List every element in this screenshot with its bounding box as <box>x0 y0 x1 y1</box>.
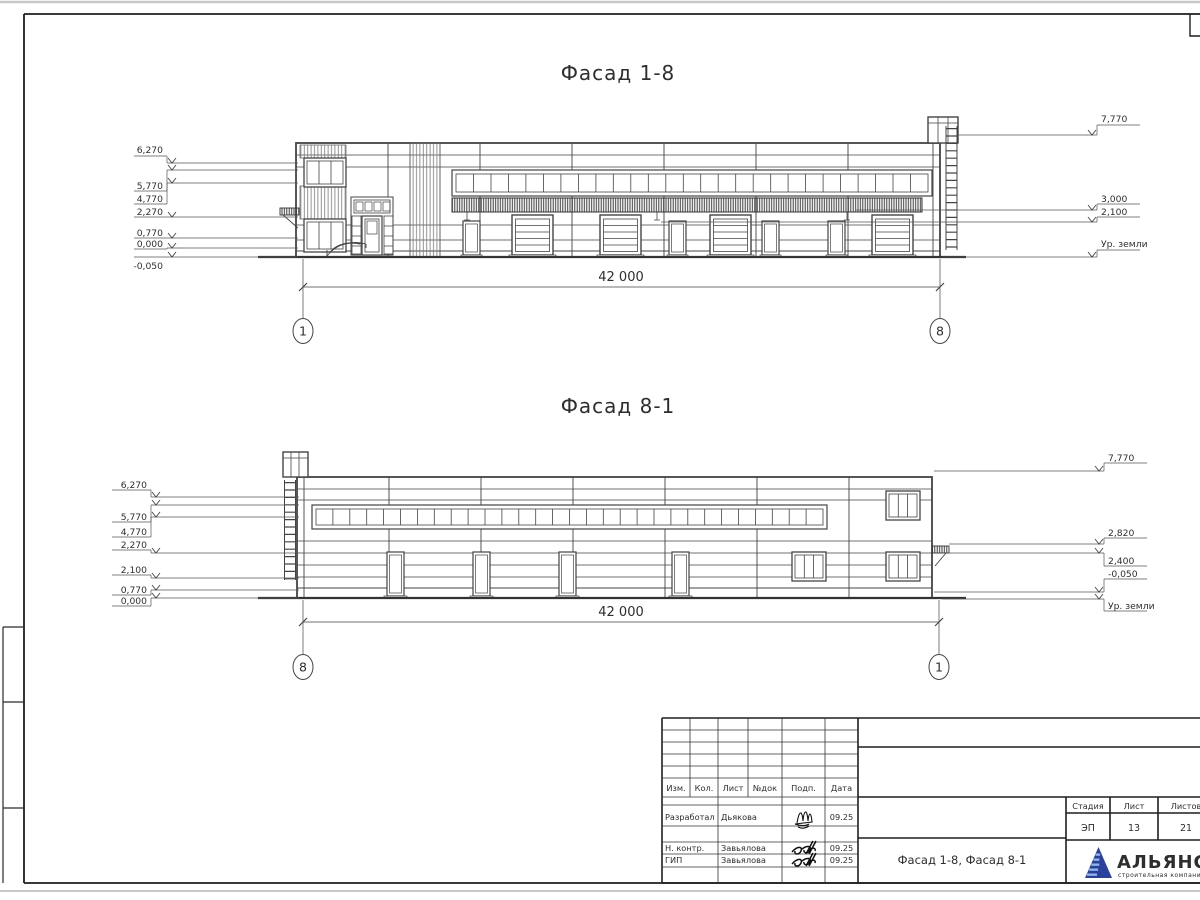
elevation-mark-label: 0,770 <box>121 585 147 596</box>
office-window-lower <box>304 219 346 252</box>
elevation-arrow-icon <box>168 252 176 257</box>
elevation-leader <box>134 156 298 163</box>
elevation-arrow-icon <box>152 573 160 578</box>
change-header-cell: №док <box>753 783 777 793</box>
facade-8-1-doors <box>384 552 692 599</box>
elevation-arrow-icon <box>1088 252 1096 257</box>
elevation-arrow-icon <box>1088 130 1096 135</box>
garage-door <box>512 215 553 255</box>
elevation-mark-label: 2,100 <box>121 565 147 576</box>
sign-role: ГИП <box>665 855 682 865</box>
entrance-portal <box>351 197 393 255</box>
logo-pyramid-icon <box>1085 847 1112 878</box>
sign-role: Разработал <box>665 812 715 822</box>
change-header-cell: Дата <box>831 783 852 793</box>
logo-stripe <box>1096 854 1101 856</box>
facade-1-8-left-elevation-marks: 6,2705,7704,7702,2700,7700,000-0,050 <box>133 145 298 272</box>
stage-header-cell: Листов <box>1171 801 1200 811</box>
elevation-mark-label: 5,770 <box>121 512 147 523</box>
elevation-mark-label: Ур. земли <box>1101 239 1148 250</box>
window <box>886 491 920 520</box>
elevation-arrow-icon <box>168 233 176 238</box>
elevation-mark-label: 6,270 <box>121 480 147 491</box>
facade-1-8: Фасад 1-8 <box>133 61 1147 344</box>
garage-door <box>872 215 913 255</box>
elevation-arrow-icon <box>1095 539 1103 544</box>
elevation-arrow-icon <box>168 212 176 217</box>
sign-name: Завьялова <box>721 855 766 865</box>
elevation-arrow-icon <box>1088 217 1096 222</box>
garage-door <box>710 215 751 255</box>
axis-circle-8b: 8 <box>299 660 307 675</box>
change-header-cell: Кол. <box>695 783 714 793</box>
facade-1-8-title: Фасад 1-8 <box>561 61 676 85</box>
garage-door <box>600 215 641 255</box>
elevation-mark-label: 4,770 <box>121 527 147 538</box>
signatures <box>792 812 816 866</box>
change-header-cell: Лист <box>723 783 744 793</box>
elevation-mark-label: 7,770 <box>1101 114 1127 125</box>
logo-stripe <box>1093 859 1099 861</box>
stage-header-cell: Стадия <box>1072 801 1103 811</box>
elevation-arrow-icon <box>1095 548 1103 553</box>
logo-stripe <box>1091 864 1099 866</box>
logo-stripe <box>1087 874 1097 876</box>
facade-8-1-left-elevation-marks: 6,2705,7704,7702,2702,1000,7700,000 <box>112 480 299 607</box>
elevation-mark-label: 7,770 <box>1108 453 1134 464</box>
elevation-mark-label: 0,000 <box>121 596 147 607</box>
drawing-frame <box>24 14 1200 883</box>
elevation-mark-label: -0,050 <box>1108 569 1138 580</box>
facade-8-1-building <box>258 452 966 599</box>
stage-header-cell: Лист <box>1124 801 1145 811</box>
sign-date: 09.25 <box>830 812 853 822</box>
change-header-cell: Изм. <box>666 783 685 793</box>
elevation-mark-label: 2,100 <box>1101 207 1127 218</box>
elevation-arrow-icon <box>1095 466 1103 471</box>
logo-tagline: строительная компания <box>1118 872 1200 879</box>
stage-value-cell: ЭП <box>1081 823 1095 834</box>
elevation-leader <box>934 463 1147 471</box>
elevation-mark-label: 4,770 <box>137 194 163 205</box>
elevation-arrow-icon <box>152 593 160 598</box>
elevation-mark-label: 0,000 <box>137 239 163 250</box>
drawing-sheet: Фасад 1-8 <box>0 0 1200 900</box>
elevation-arrow-icon <box>152 500 160 505</box>
elevation-mark-label: 3,000 <box>1101 194 1127 205</box>
elevation-mark-label: -0,050 <box>133 261 163 272</box>
axis-circle-1: 1 <box>299 324 307 339</box>
elevation-arrow-icon <box>168 165 176 170</box>
logo-name: АЛЬЯНС <box>1117 852 1200 873</box>
sign-role: Н. контр. <box>665 843 704 853</box>
sign-date: 09.25 <box>830 843 853 853</box>
facade-8-1-right-elevation-marks: 7,7702,8202,400-0,050Ур. земли <box>934 453 1155 612</box>
elevation-mark-label: 0,770 <box>137 228 163 239</box>
elevation-mark-label: 6,270 <box>137 145 163 156</box>
elevation-arrow-icon <box>152 512 160 517</box>
elevation-leader <box>934 579 1147 592</box>
drawing-canvas: Фасад 1-8 <box>0 0 1200 900</box>
stage-value-cell: 13 <box>1128 823 1140 834</box>
elevation-arrow-icon <box>168 243 176 248</box>
change-header-cell: Подп. <box>791 783 816 793</box>
elevation-arrow-icon <box>152 492 160 497</box>
window <box>792 552 826 581</box>
elevation-leader <box>958 125 1140 135</box>
axis-circle-8: 8 <box>936 324 944 339</box>
facade-8-1-dim-text: 42 000 <box>598 605 644 620</box>
elevation-arrow-icon <box>1095 594 1103 599</box>
elevation-mark-label: 5,770 <box>137 181 163 192</box>
office-window-upper <box>304 158 346 187</box>
elevation-mark-label: Ур. земли <box>1108 601 1155 612</box>
elevation-mark-label: 2,270 <box>121 540 147 551</box>
facade-8-1: Фасад 8-1 <box>112 394 1155 680</box>
elevation-arrow-icon <box>168 158 176 163</box>
company-logo: АЛЬЯНС строительная компания <box>1085 847 1200 879</box>
logo-stripe <box>1089 869 1098 871</box>
facade-1-8-dim-text: 42 000 <box>598 270 644 285</box>
sign-name: Дьякова <box>721 812 757 822</box>
elevation-mark-label: 2,820 <box>1108 528 1134 539</box>
axis-circle-1b: 1 <box>935 660 943 675</box>
facade-8-1-title: Фасад 8-1 <box>561 394 676 418</box>
elevation-mark-label: 2,400 <box>1108 556 1134 567</box>
frame-margin-boxes <box>3 627 24 883</box>
window <box>886 552 920 581</box>
elevation-arrow-icon <box>152 548 160 553</box>
stage-value-cell: 21 <box>1180 823 1192 834</box>
elevation-leader <box>112 490 299 497</box>
elevation-mark-label: 2,270 <box>137 207 163 218</box>
sign-date: 09.25 <box>830 855 853 865</box>
sign-name: Завьялова <box>721 843 766 853</box>
elevation-arrow-icon <box>1088 205 1096 210</box>
elevation-arrow-icon <box>168 178 176 183</box>
elevation-arrow-icon <box>1095 587 1103 592</box>
doc-title: Фасад 1-8, Фасад 8-1 <box>898 853 1027 867</box>
title-block: Изм.Кол.Лист№докПодп.ДатаРазработалДьяко… <box>662 718 1200 883</box>
elevation-leader <box>942 250 1140 257</box>
elevation-arrow-icon <box>152 585 160 590</box>
facade-1-8-building <box>258 117 966 258</box>
